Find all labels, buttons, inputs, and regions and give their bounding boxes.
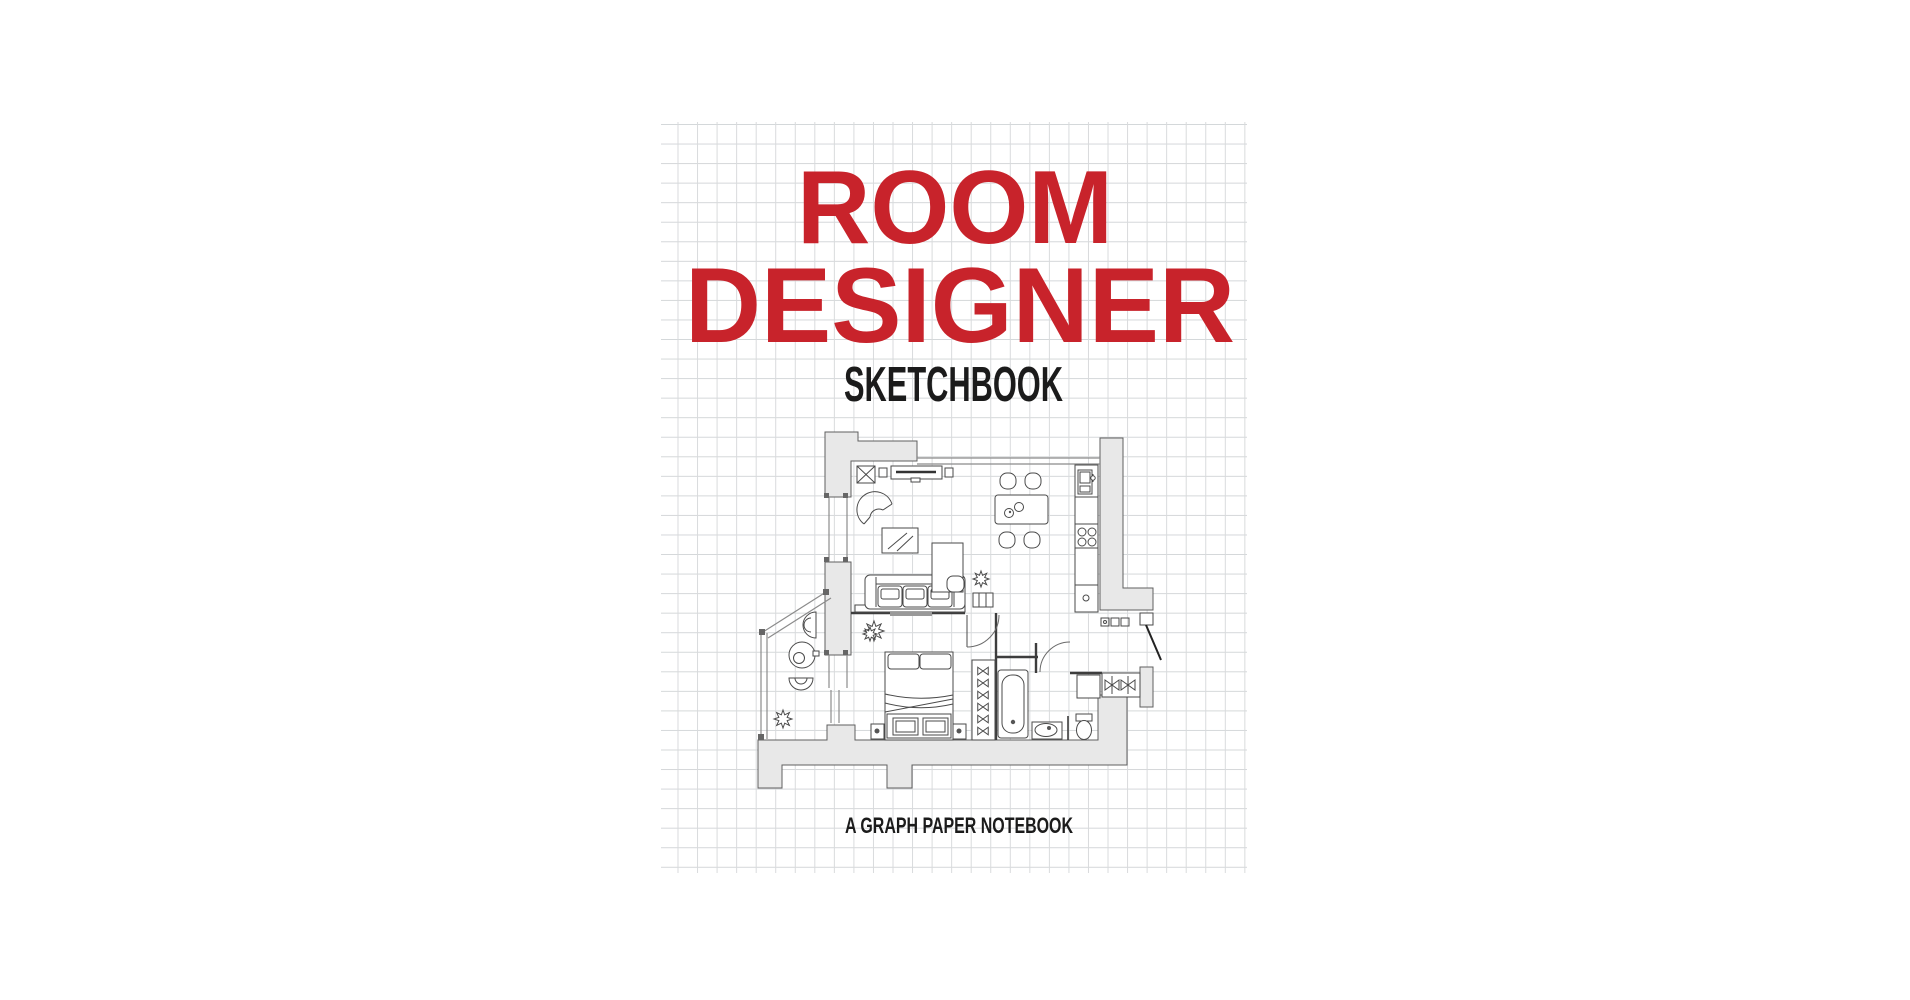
wardrobe-icon <box>1102 673 1140 697</box>
bathroom-door-arc <box>1040 642 1070 672</box>
entry-door-hinge <box>1140 613 1153 625</box>
plant-icon <box>774 710 792 728</box>
round-washbasin-icon <box>789 642 819 668</box>
desk-chair-icon <box>947 576 964 592</box>
entry-shelf-icons <box>1101 618 1129 626</box>
bedroom-door-arc <box>967 615 999 647</box>
plant-icon <box>863 627 877 641</box>
entry-door-leaf <box>1146 625 1161 660</box>
bedroom-furniture <box>863 627 995 740</box>
plant-icon <box>973 571 989 587</box>
toilet-icon <box>1076 714 1092 740</box>
chair-icon <box>1025 473 1041 489</box>
subtitle: SKETCHBOOK <box>844 358 1063 412</box>
coffee-table-icon <box>882 528 918 553</box>
chair-icon <box>1024 532 1040 548</box>
drying-rack-icon <box>972 660 995 740</box>
nightstand-icon <box>953 724 966 739</box>
bathtub-icon <box>998 670 1028 738</box>
bidet-icon <box>789 678 813 690</box>
washbasin-icon <box>1032 722 1062 739</box>
floor-plan-illustration <box>750 425 1170 805</box>
tv-console-icon <box>857 466 953 483</box>
side-table-icon <box>973 593 993 607</box>
bed-icon <box>885 652 953 740</box>
book-cover: ROOM DESIGNER SKETCHBOOK A GRAPH PAPER N… <box>661 122 1247 873</box>
chair-icon <box>999 532 1015 548</box>
title-line-2: DESIGNER <box>685 245 1235 365</box>
armchair-icon <box>857 492 892 524</box>
nightstand-icon <box>871 724 884 739</box>
cabinet-icon <box>1077 675 1100 698</box>
tagline: A GRAPH PAPER NOTEBOOK <box>845 813 1073 838</box>
desk-icon <box>932 543 964 592</box>
chair-icon <box>1000 473 1016 489</box>
toilet-icon <box>803 612 816 638</box>
